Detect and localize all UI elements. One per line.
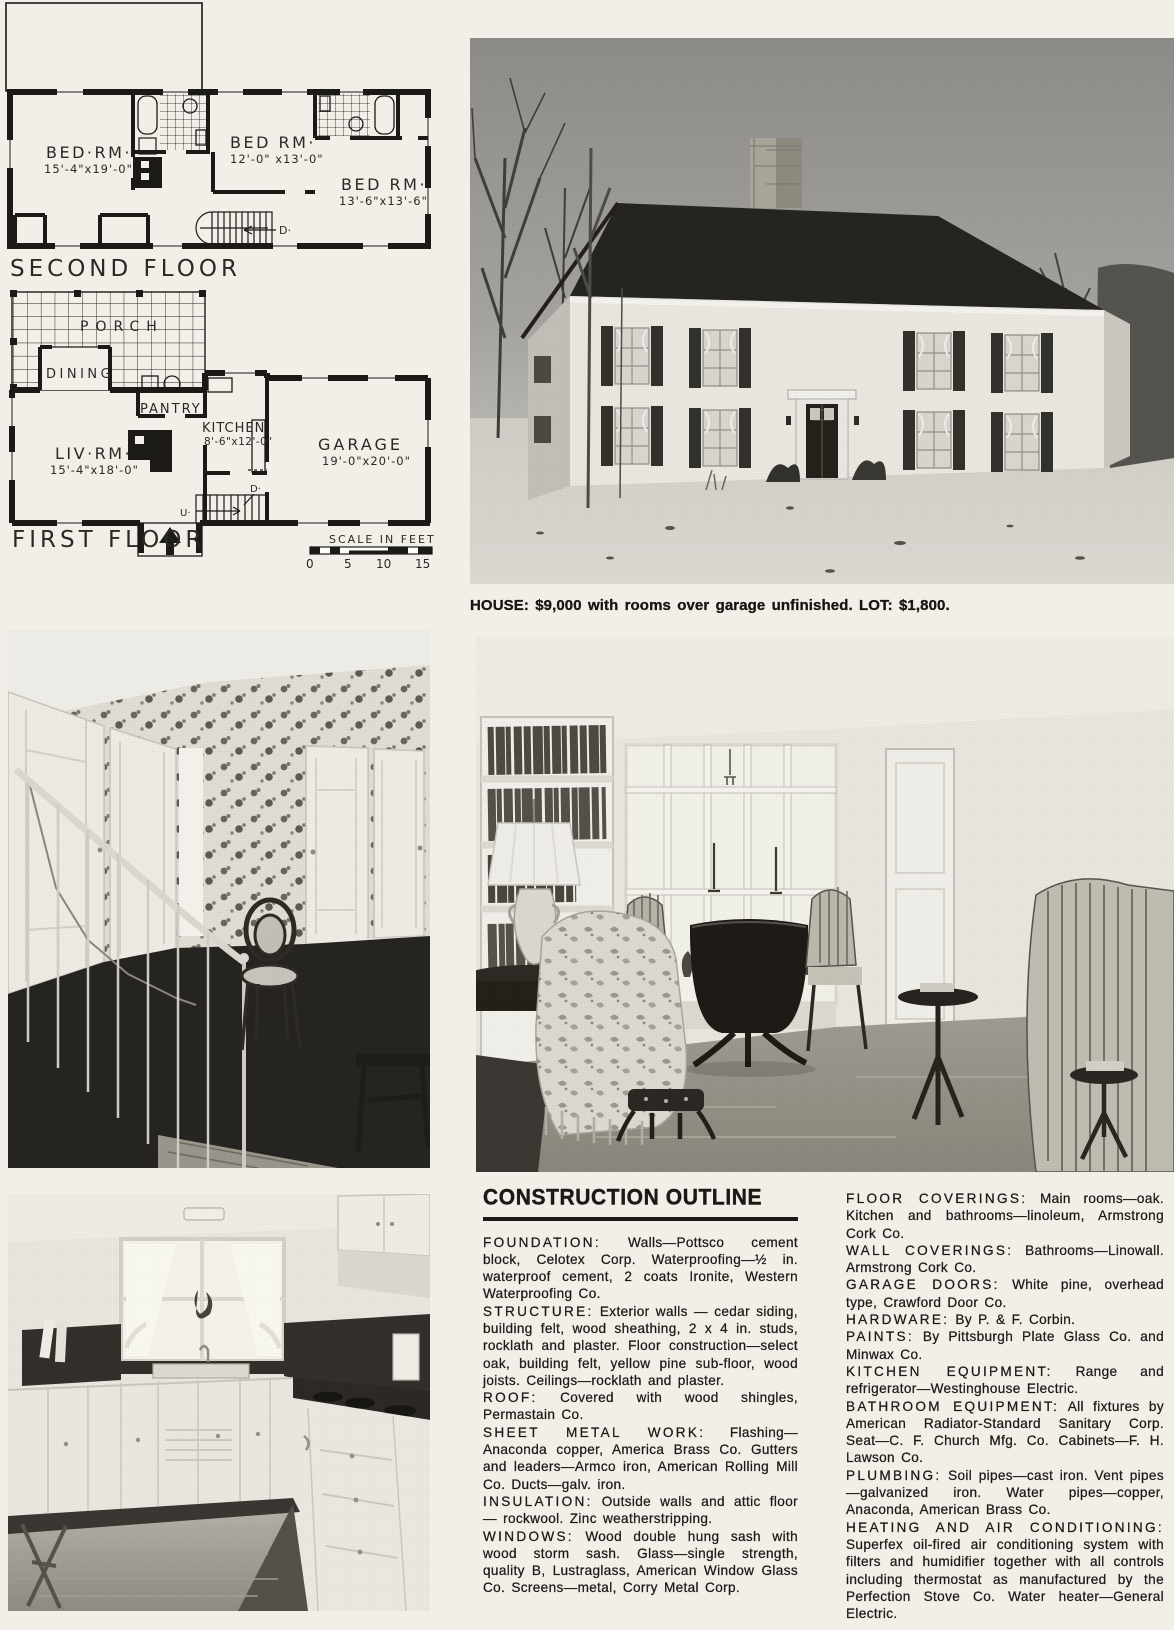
outline-entry-heading: BATHROOM EQUIPMENT: <box>846 1399 1059 1414</box>
bedroom3-label: BED RM· <box>341 175 427 194</box>
construction-outline-right: FLOOR COVERINGS: Main rooms—oak. Kitchen… <box>846 1190 1164 1622</box>
price-caption: HOUSE: $9,000 with rooms over garage unf… <box>470 596 1174 616</box>
bathroom-1 <box>138 94 206 154</box>
garage-dims: 19'-0"x20'-0" <box>322 454 411 468</box>
outline-entry-heading: HEATING AND AIR CONDITIONING: <box>846 1520 1164 1535</box>
scale-tick-0: 0 <box>306 557 314 571</box>
kitchen-photo <box>8 1194 430 1611</box>
scale-tick-15: 15 <box>415 557 430 571</box>
bedroom1-dims: 15'-4"x19'-0" <box>44 162 133 176</box>
scale-tick-10: 10 <box>376 557 391 571</box>
stair-down-label-first: D· <box>250 484 261 495</box>
outline-entry-heating: HEATING AND AIR CONDITIONING: Superfex o… <box>846 1519 1164 1623</box>
bathroom-2 <box>318 94 394 136</box>
halftone-overlay <box>8 630 430 1168</box>
halftone-overlay <box>8 1194 430 1611</box>
scale-tick-5: 5 <box>344 557 352 571</box>
outline-entry-insulation: INSULATION: Outside walls and attic floo… <box>483 1493 798 1528</box>
living-room-label: LIV·RM· <box>55 444 132 463</box>
outline-entry-body: Superfex oil-fired air conditioning syst… <box>846 1537 1164 1621</box>
bathtub <box>138 96 157 134</box>
garage-label: GARAGE <box>318 435 403 454</box>
title-rule <box>483 1217 798 1221</box>
pantry-label: PANTRY <box>140 402 202 417</box>
halftone-overlay <box>470 38 1174 584</box>
outline-entry-heading: WALL COVERINGS: <box>846 1243 1013 1258</box>
chimney-mass <box>133 157 162 188</box>
outline-entry-heading: ROOF: <box>483 1390 538 1405</box>
refrigerator <box>208 378 232 392</box>
outline-entry-heading: WINDOWS: <box>483 1529 574 1544</box>
outline-entry-paints: PAINTS: By Pittsburgh Plate Glass Co. an… <box>846 1328 1164 1363</box>
bedroom1-label: BED·RM· <box>46 143 132 162</box>
house-exterior-photo <box>470 38 1174 584</box>
living-room-photo <box>476 637 1174 1172</box>
outline-entry-kitchen-equipment: KITCHEN EQUIPMENT: Range and refrigerato… <box>846 1363 1164 1398</box>
bedroom2-label: BED RM· <box>230 133 316 152</box>
bedroom3-dims: 13'-6"x13'-6" <box>339 194 428 208</box>
first-floor-title: FIRST FLOOR <box>12 527 205 553</box>
outline-entry-heading: FOUNDATION: <box>483 1235 601 1250</box>
porch-label: PORCH <box>80 319 164 335</box>
outline-entry-floor-coverings: FLOOR COVERINGS: Main rooms—oak. Kitchen… <box>846 1190 1164 1242</box>
outline-entry-structure: STRUCTURE: Exterior walls — cedar siding… <box>483 1303 798 1389</box>
outline-entry-heading: INSULATION: <box>483 1494 593 1509</box>
outline-entry-heading: GARAGE DOORS: <box>846 1277 1000 1292</box>
kitchen-dims: 8'-6"x12'-0" <box>204 436 273 448</box>
stair-hall-photo <box>8 630 430 1168</box>
stair-down-label: D· <box>279 224 291 237</box>
outline-entry-plumbing: PLUMBING: Soil pipes—cast iron. Vent pip… <box>846 1467 1164 1519</box>
construction-outline-left: CONSTRUCTION OUTLINE FOUNDATION: Walls—P… <box>483 1186 798 1597</box>
outline-entry-bathroom-equipment: BATHROOM EQUIPMENT: All fixtures by Amer… <box>846 1398 1164 1467</box>
outline-entry-hardware: HARDWARE: By P. & F. Corbin. <box>846 1311 1164 1328</box>
bedroom2-dims: 12'-0" x13'-0" <box>230 152 324 166</box>
outline-entry-heading: PAINTS: <box>846 1329 914 1344</box>
magazine-page: BED·RM· 15'-4"x19'-0" BED RM· 12'-0" x13… <box>0 0 1174 1630</box>
outline-entry-garage-doors: GARAGE DOORS: White pine, overhead type,… <box>846 1276 1164 1311</box>
outline-entry-heading: FLOOR COVERINGS: <box>846 1191 1027 1206</box>
stair-up-label: U· <box>180 508 191 519</box>
construction-outline-title: CONSTRUCTION OUTLINE <box>483 1186 798 1211</box>
scale-label: SCALE IN FEET <box>329 533 436 546</box>
outline-entry-windows: WINDOWS: Wood double hung sash with wood… <box>483 1528 798 1597</box>
outline-entry-heading: KITCHEN EQUIPMENT: <box>846 1364 1053 1379</box>
outline-entry-heading: SHEET METAL WORK: <box>483 1425 705 1440</box>
outline-entry-foundation: FOUNDATION: Walls—Pottsco cement block, … <box>483 1234 798 1303</box>
floor-plans-drawing: BED·RM· 15'-4"x19'-0" BED RM· 12'-0" x13… <box>0 0 455 575</box>
outline-entry-roof: ROOF: Covered with wood shingles, Permas… <box>483 1389 798 1424</box>
second-floor-stairs <box>196 212 276 244</box>
bathtub <box>375 96 394 134</box>
dining-label: DINING <box>46 367 114 382</box>
unfinished-space-over-garage <box>6 3 202 91</box>
second-floor-plan: BED·RM· 15'-4"x19'-0" BED RM· 12'-0" x13… <box>5 3 433 282</box>
first-floor-plan: PORCH DINING PANTRY KITCHEN 8'-6"x12'-0"… <box>10 290 430 556</box>
outline-entry-heading: STRUCTURE: <box>483 1304 594 1319</box>
outline-entry-wall-coverings: WALL COVERINGS: Bathrooms—Linowall. Arms… <box>846 1242 1164 1277</box>
outline-entry-sheet-metal: SHEET METAL WORK: Flashing—Anaconda copp… <box>483 1424 798 1493</box>
kitchen-label: KITCHEN <box>202 421 265 436</box>
second-floor-title: SECOND FLOOR <box>10 256 241 282</box>
outline-entry-heading: PLUMBING: <box>846 1468 941 1483</box>
halftone-overlay <box>476 637 1174 1172</box>
scale-bar: SCALE IN FEET 0 5 10 15 <box>306 533 436 571</box>
outline-entry-body: By P. & F. Corbin. <box>955 1312 1075 1327</box>
outline-entry-heading: HARDWARE: <box>846 1312 949 1327</box>
living-room-dims: 15'-4"x18'-0" <box>50 463 139 477</box>
